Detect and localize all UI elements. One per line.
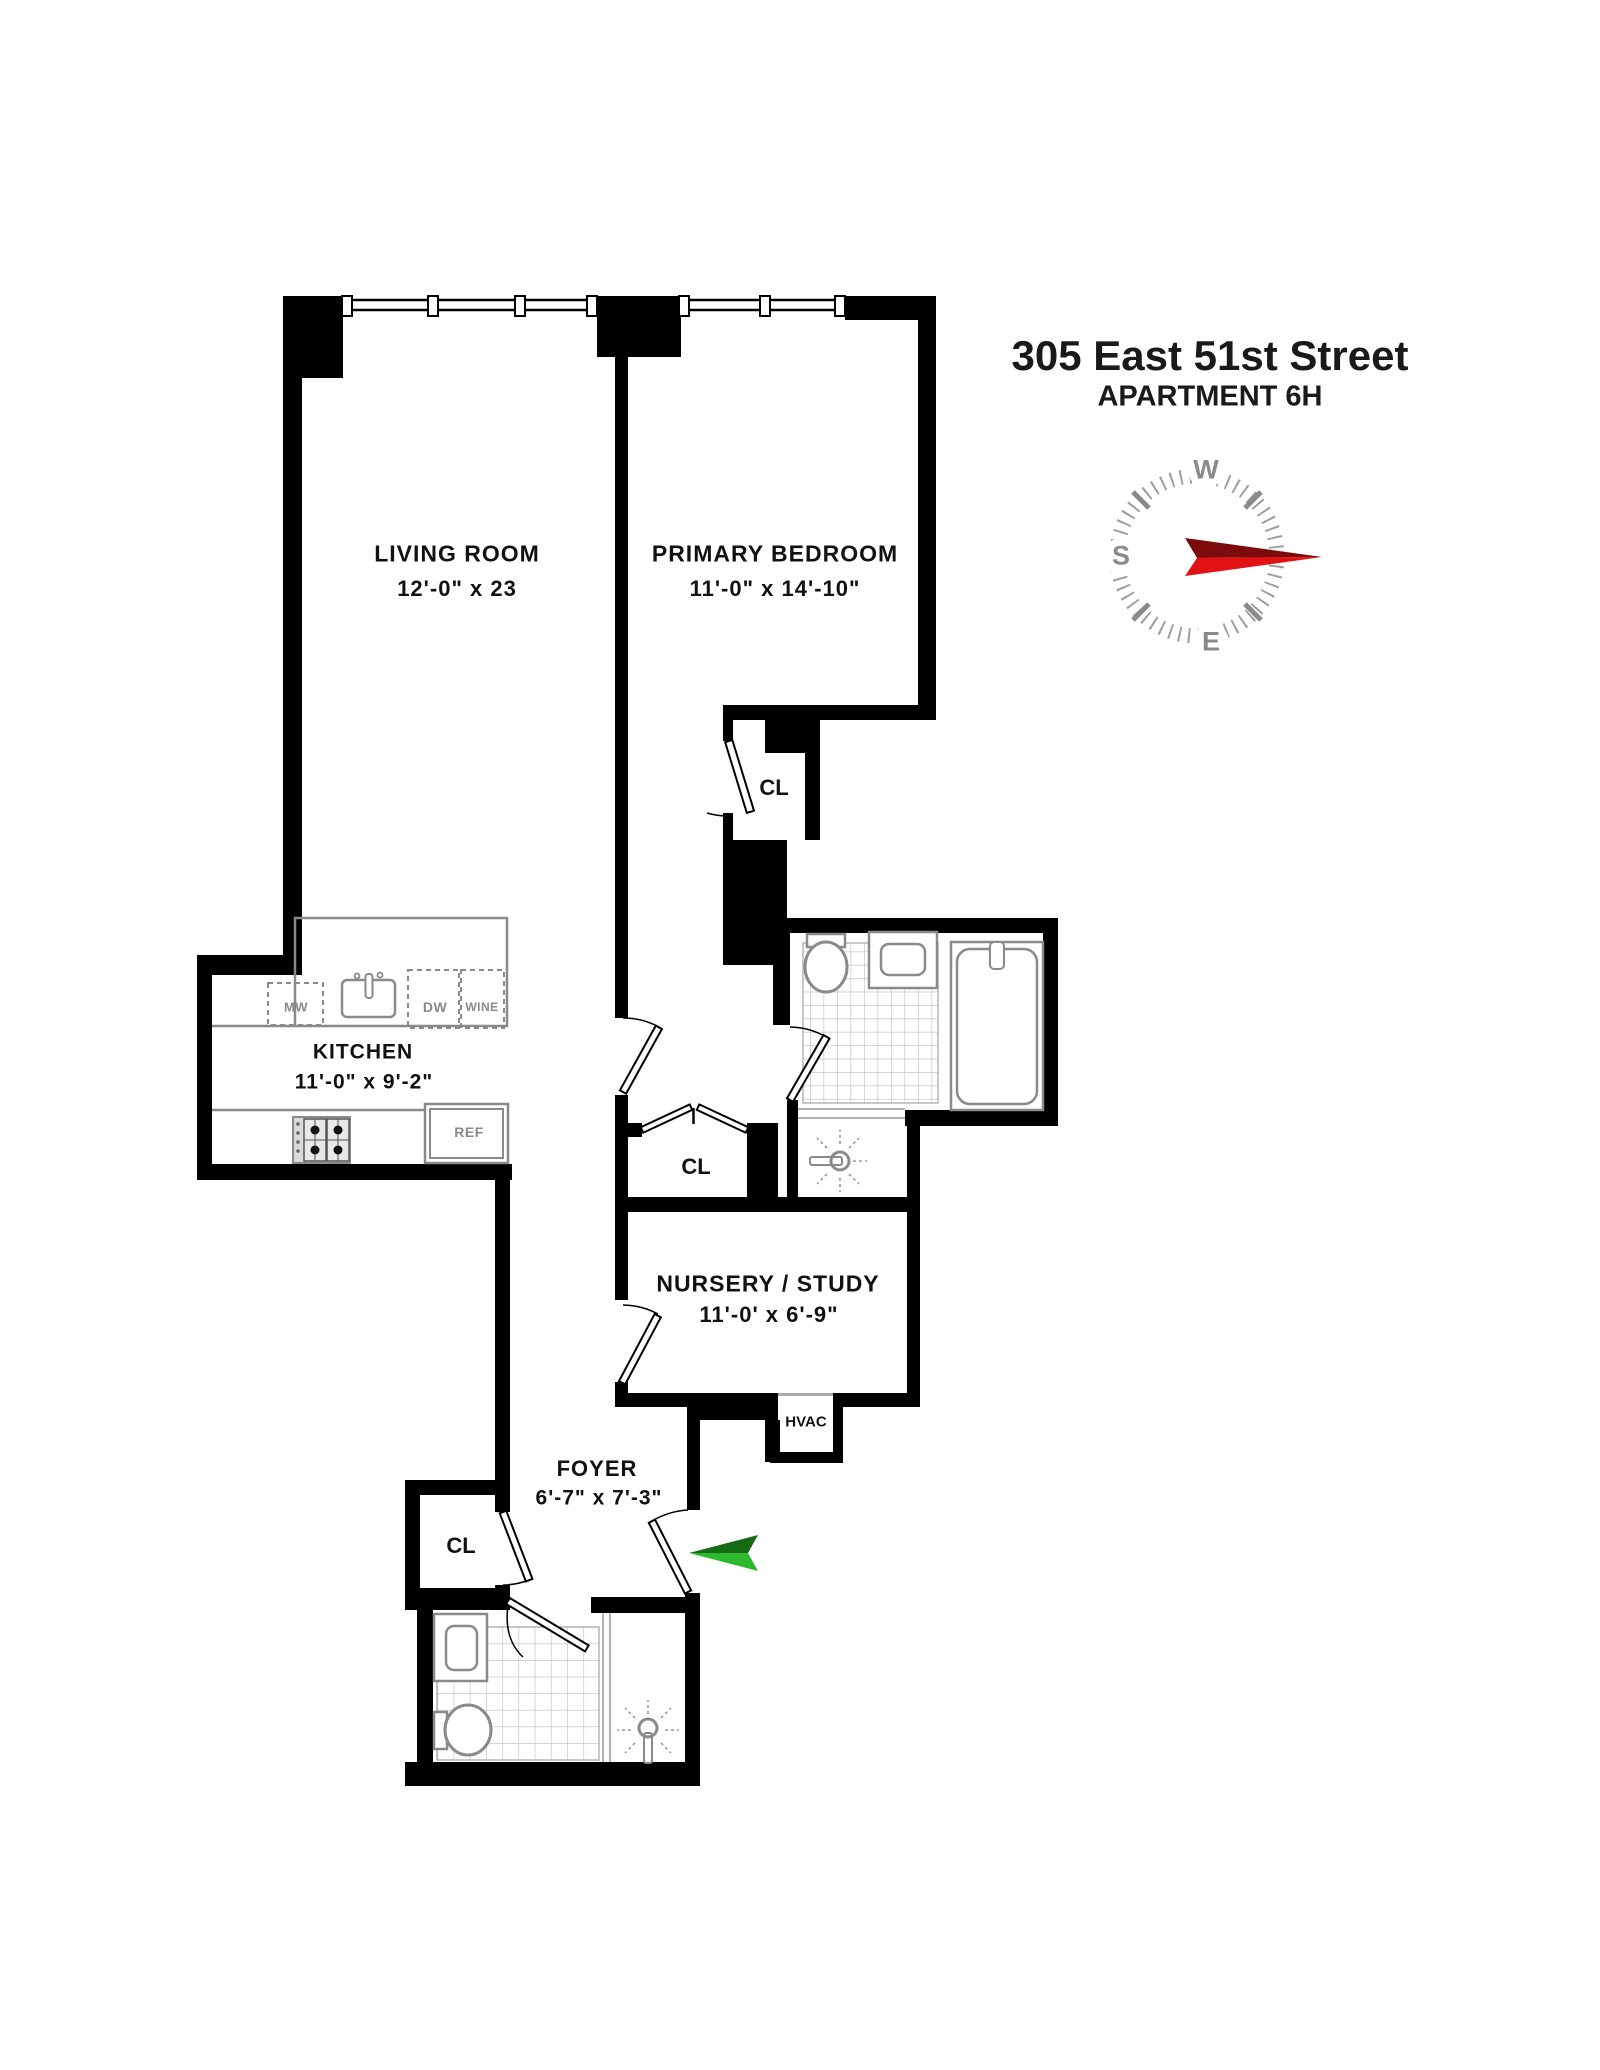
compass-west-label: W [1193, 457, 1218, 484]
hvac-label: HVAC [785, 1415, 826, 1430]
room-label-bedroom: PRIMARY BEDROOM [652, 543, 898, 566]
shower-icon [617, 1700, 679, 1763]
room-dims-kitchen: 11'-0" x 9'-2" [295, 1072, 433, 1093]
room-label-nursery: NURSERY / STUDY [656, 1273, 879, 1296]
toilet-icon [805, 934, 847, 992]
compass-east-label: E [1202, 629, 1220, 656]
bedroom-closet-door [707, 740, 754, 816]
room-dims-bedroom: 11'-0" x 14'-10" [690, 578, 861, 600]
dishwasher-label: DW [423, 1000, 447, 1014]
foyer-closet-door [500, 1511, 533, 1585]
wine-cooler-icon [461, 970, 504, 1028]
entry-door [649, 1510, 691, 1594]
page-subtitle: APARTMENT 6H [1097, 383, 1322, 412]
closet-label-hall: CL [681, 1156, 710, 1178]
stove-icon [293, 1117, 350, 1163]
sink-icon [869, 932, 937, 988]
closet-label-bedroom: CL [759, 777, 788, 799]
toilet-icon [434, 1705, 491, 1755]
room-label-foyer: FOYER [557, 1458, 638, 1480]
living-hall-door [620, 1018, 662, 1094]
compass-south-label: S [1112, 543, 1130, 570]
fridge-label: REF [454, 1125, 484, 1139]
room-dims-living: 12'-0" x 23 [397, 578, 517, 600]
room-label-living: LIVING ROOM [374, 543, 540, 566]
foyer-bathroom [434, 1613, 679, 1763]
shower-icon [810, 1130, 867, 1192]
microwave-label: MW [284, 1001, 308, 1014]
window-band [342, 296, 845, 316]
bathtub-icon [951, 942, 1043, 1110]
floorplan-page: 305 East 51st Street APARTMENT 6H LIVING… [0, 0, 1600, 2070]
entry-arrow-icon [689, 1535, 758, 1571]
room-dims-foyer: 6'-7" x 7'-3" [536, 1488, 663, 1509]
compass-needle [1185, 538, 1322, 576]
closet-label-foyer: CL [446, 1535, 475, 1557]
page-title: 305 East 51st Street [1012, 335, 1409, 377]
primary-bathroom [798, 932, 1043, 1192]
hvac-louver [778, 1393, 833, 1396]
sink-icon [434, 1614, 487, 1681]
floorplan-drawing [0, 0, 1600, 2070]
hall-closet-bifold-door [641, 1104, 749, 1132]
nursery-door [619, 1305, 661, 1384]
room-dims-nursery: 11'-0' x 6'-9" [699, 1304, 838, 1326]
kitchen-sink-icon [342, 973, 395, 1018]
wine-cooler-label: WINE [465, 1001, 498, 1013]
room-label-kitchen: KITCHEN [313, 1042, 413, 1063]
